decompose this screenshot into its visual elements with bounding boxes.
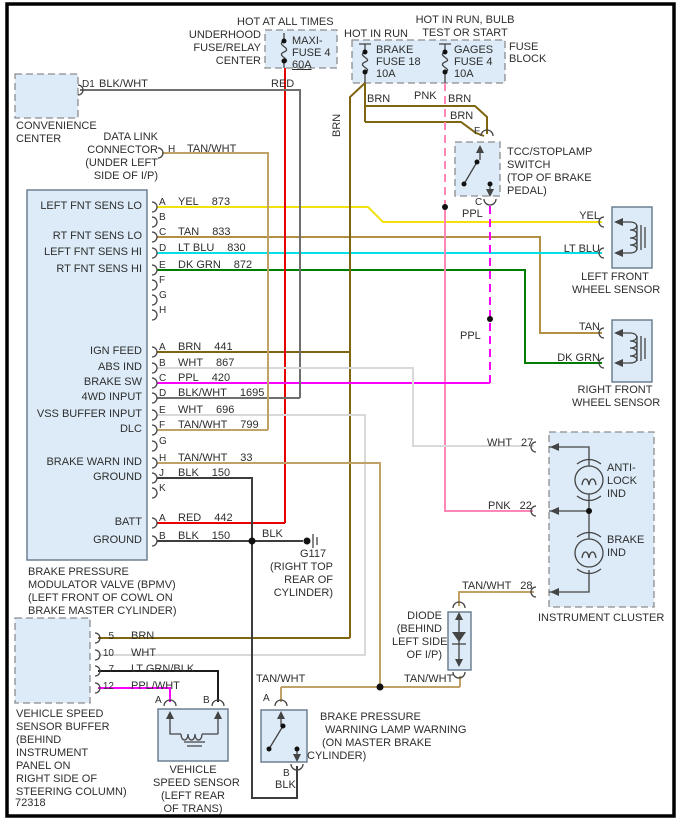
wires-layer — [80, 68, 602, 798]
cluster-pin-brackets — [531, 442, 536, 597]
wire-pplwht — [98, 688, 170, 702]
fuse-block-box — [352, 40, 505, 83]
wiring-diagram-canvas — [0, 0, 681, 830]
sensor-pin-brackets — [599, 217, 604, 368]
wire-blk-150-j — [157, 478, 252, 541]
wire-tan-833 — [157, 237, 602, 333]
wire-brn-to-switch-upper — [365, 106, 487, 134]
junction-dot — [586, 508, 592, 514]
wire-brn-vertical — [350, 83, 365, 638]
convenience-center-box — [15, 74, 78, 118]
wire-yel-873 — [157, 207, 602, 222]
wire-ltgrnblk — [98, 671, 218, 702]
g117-ground-symbol — [304, 534, 318, 548]
wire-dkgrn-872 — [157, 270, 602, 363]
wire-tanwht-33 — [157, 463, 380, 687]
vss-buffer-box — [15, 618, 90, 703]
wire-wht-867 — [157, 368, 534, 446]
wiring-diagram-page: HOT AT ALL TIMES UNDERHOOD FUSE/RELAY CE… — [0, 0, 681, 830]
right-front-wheel-sensor-box — [612, 320, 652, 382]
wire-brn-to-switch-lower — [365, 122, 484, 136]
instrument-cluster-box — [549, 432, 654, 607]
maxi-fuse-box — [265, 30, 337, 68]
bottom-brackets — [291, 199, 496, 770]
component-boxes — [15, 30, 654, 762]
bpmv-pin-brackets — [152, 202, 157, 546]
buffer-pin-brackets — [95, 633, 100, 693]
dlc-and-convenience-brackets — [78, 85, 163, 158]
connector-brackets — [78, 85, 604, 770]
top-brackets — [164, 130, 493, 706]
bpmv-box — [27, 190, 147, 560]
wire-tanwht-28 — [459, 592, 534, 606]
wire-tanwht-dlc — [162, 153, 268, 430]
